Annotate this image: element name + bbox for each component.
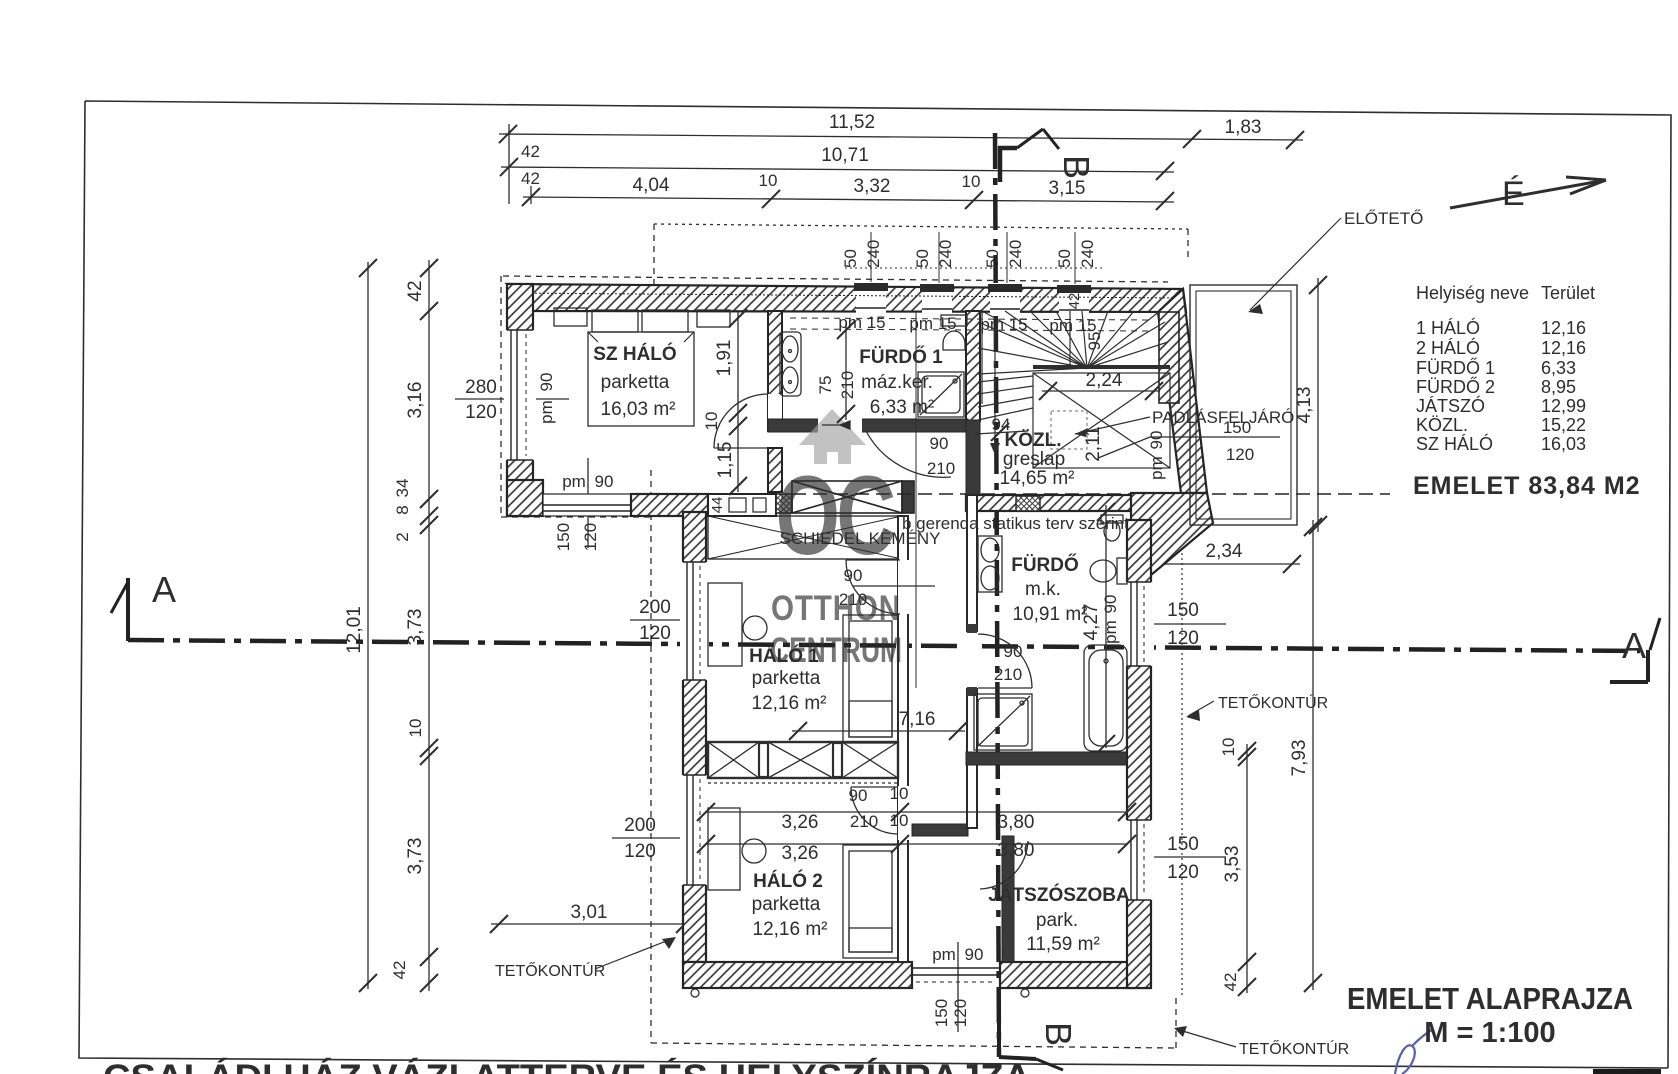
- svg-text:200: 200: [639, 597, 671, 618]
- svg-text:8,95: 8,95: [1541, 377, 1576, 397]
- svg-text:12,16 m²: 12,16 m²: [752, 693, 827, 714]
- svg-text:90: 90: [930, 434, 949, 453]
- svg-text:3,26: 3,26: [782, 812, 819, 833]
- svg-text:CSALÁDI HÁZ VÁZLATTERVE ÉS HEL: CSALÁDI HÁZ VÁZLATTERVE ÉS HELYSZÍNRAJZA: [103, 1057, 1031, 1074]
- svg-text:44: 44: [709, 497, 726, 514]
- svg-text:FÜRDŐ 1: FÜRDŐ 1: [1416, 357, 1495, 378]
- svg-text:EMELET ALAPRAJZA: EMELET ALAPRAJZA: [1347, 981, 1633, 1016]
- svg-text:50: 50: [841, 249, 860, 268]
- svg-text:42: 42: [521, 169, 540, 188]
- svg-text:12,99: 12,99: [1541, 396, 1586, 416]
- svg-text:10: 10: [1219, 738, 1238, 757]
- svg-text:16,03 m²: 16,03 m²: [601, 399, 676, 420]
- svg-text:Helyiség neve: Helyiség neve: [1416, 283, 1529, 303]
- svg-text:90: 90: [844, 566, 863, 585]
- svg-text:10,91 m²: 10,91 m²: [1013, 604, 1088, 625]
- svg-text:7,93: 7,93: [1289, 740, 1310, 777]
- svg-text:TETŐKONTÚR: TETŐKONTÚR: [1239, 1039, 1349, 1058]
- svg-text:3,32: 3,32: [854, 176, 891, 197]
- svg-text:90: 90: [595, 472, 614, 491]
- svg-text:FÜRDŐ 2: FÜRDŐ 2: [1416, 376, 1495, 397]
- svg-text:B: B: [1038, 1022, 1079, 1046]
- svg-text:90: 90: [1101, 595, 1120, 614]
- svg-text:150: 150: [554, 523, 573, 551]
- svg-text:É: É: [1502, 175, 1525, 213]
- svg-text:3,73: 3,73: [405, 838, 426, 875]
- svg-text:210: 210: [838, 371, 857, 399]
- svg-text:16,03: 16,03: [1541, 434, 1586, 454]
- svg-text:75: 75: [816, 376, 835, 395]
- svg-text:3,15: 3,15: [1049, 178, 1086, 199]
- svg-text:M = 1:100: M = 1:100: [1424, 1017, 1555, 1049]
- svg-text:pm: pm: [537, 400, 556, 424]
- svg-text:50: 50: [1055, 249, 1074, 268]
- svg-text:ELŐTETŐ: ELŐTETŐ: [1344, 209, 1423, 228]
- svg-text:210: 210: [850, 812, 878, 831]
- svg-text:150: 150: [1167, 834, 1199, 855]
- svg-text:240: 240: [1078, 240, 1097, 268]
- svg-text:KÖZL.: KÖZL.: [1005, 430, 1062, 451]
- svg-text:3,80: 3,80: [998, 812, 1035, 833]
- svg-text:3,16: 3,16: [405, 382, 426, 419]
- svg-text:B: B: [1056, 155, 1097, 179]
- svg-text:4,27: 4,27: [1081, 604, 1102, 641]
- svg-text:parketta: parketta: [752, 894, 821, 915]
- svg-text:14,65 m²: 14,65 m²: [1000, 468, 1075, 489]
- svg-text:42: 42: [390, 961, 409, 980]
- svg-text:42: 42: [1066, 293, 1083, 310]
- svg-text:JÁTSZÓSZOBA: JÁTSZÓSZOBA: [988, 884, 1130, 906]
- svg-text:90: 90: [1004, 642, 1023, 661]
- svg-text:Terület: Terület: [1541, 283, 1595, 303]
- svg-text:280: 280: [465, 377, 497, 398]
- svg-text:150: 150: [1167, 600, 1199, 621]
- svg-text:6,33 m²: 6,33 m²: [870, 397, 934, 418]
- svg-text:EMELET 83,84 M2: EMELET 83,84 M2: [1413, 472, 1641, 500]
- svg-text:210: 210: [839, 590, 867, 609]
- svg-text:120: 120: [581, 523, 600, 551]
- svg-text:240: 240: [1006, 240, 1025, 268]
- svg-text:8: 8: [393, 505, 412, 514]
- svg-text:TETŐKONTÚR: TETŐKONTÚR: [1218, 693, 1328, 712]
- svg-text:1,91: 1,91: [714, 340, 735, 377]
- svg-text:12,16 m²: 12,16 m²: [753, 919, 828, 940]
- svg-text:50: 50: [983, 249, 1002, 268]
- svg-text:m.k.: m.k.: [1025, 579, 1061, 600]
- svg-text:pm: pm: [1101, 620, 1120, 644]
- svg-text:FÜRDŐ 1: FÜRDŐ 1: [859, 346, 943, 368]
- svg-text:7,16: 7,16: [899, 709, 936, 730]
- svg-text:94: 94: [992, 415, 1011, 434]
- svg-text:KÖZL.: KÖZL.: [1416, 415, 1468, 435]
- svg-text:42: 42: [521, 142, 540, 161]
- svg-text:90: 90: [849, 786, 868, 805]
- svg-text:150: 150: [1223, 418, 1251, 437]
- svg-text:FÜRDŐ: FÜRDŐ: [1011, 554, 1079, 576]
- svg-text:210: 210: [994, 665, 1022, 684]
- svg-text:12,16: 12,16: [1541, 338, 1586, 358]
- svg-text:b gerenda statikus terv szerin: b gerenda statikus terv szerint: [902, 514, 1129, 533]
- svg-text:pm: pm: [932, 945, 956, 964]
- svg-text:42: 42: [405, 280, 426, 301]
- svg-text:3,01: 3,01: [571, 902, 608, 923]
- svg-text:SZ HÁLÓ: SZ HÁLÓ: [593, 343, 676, 365]
- svg-text:A: A: [152, 569, 176, 610]
- svg-text:10: 10: [702, 412, 721, 431]
- svg-text:A: A: [1622, 625, 1646, 666]
- svg-text:50: 50: [913, 249, 932, 268]
- svg-text:11,52: 11,52: [829, 112, 875, 133]
- svg-text:90: 90: [1147, 431, 1166, 450]
- svg-text:park.: park.: [1036, 910, 1078, 931]
- svg-text:150: 150: [932, 999, 951, 1027]
- svg-text:1 HÁLÓ: 1 HÁLÓ: [1416, 317, 1480, 338]
- svg-text:90: 90: [537, 373, 556, 392]
- svg-text:3,26: 3,26: [782, 843, 819, 864]
- svg-text:6,33: 6,33: [1541, 358, 1576, 378]
- svg-text:3,80: 3,80: [998, 840, 1035, 861]
- svg-text:1,83: 1,83: [1225, 117, 1262, 138]
- svg-text:210: 210: [927, 459, 955, 478]
- svg-text:pm: pm: [562, 472, 586, 491]
- svg-text:120: 120: [1226, 445, 1254, 464]
- svg-text:10: 10: [890, 784, 909, 803]
- svg-text:OC: OC: [776, 453, 895, 578]
- svg-text:JÁTSZÓ: JÁTSZÓ: [1416, 395, 1485, 416]
- svg-text:pm 15: pm 15: [1049, 316, 1096, 335]
- svg-text:12,01: 12,01: [344, 606, 365, 654]
- svg-text:TETŐKONTÚR: TETŐKONTÚR: [495, 961, 605, 980]
- svg-text:1,15: 1,15: [715, 442, 736, 479]
- svg-text:90: 90: [965, 945, 984, 964]
- svg-text:120: 120: [951, 999, 970, 1027]
- svg-text:parketta: parketta: [601, 372, 670, 393]
- svg-text:42: 42: [1221, 973, 1240, 992]
- svg-text:pm 15: pm 15: [980, 315, 1027, 334]
- svg-text:10: 10: [759, 171, 778, 190]
- svg-text:240: 240: [864, 240, 883, 268]
- svg-text:10: 10: [962, 172, 981, 191]
- svg-text:2: 2: [393, 532, 412, 541]
- svg-text:SZ HÁLÓ: SZ HÁLÓ: [1416, 433, 1493, 454]
- svg-text:34: 34: [393, 479, 412, 498]
- svg-text:HÁLÓ 2: HÁLÓ 2: [753, 870, 823, 892]
- svg-text:11,59 m²: 11,59 m²: [1026, 934, 1100, 955]
- svg-text:3,53: 3,53: [1222, 846, 1243, 883]
- svg-text:máz.ker.: máz.ker.: [861, 372, 933, 393]
- svg-text:10,71: 10,71: [821, 145, 869, 166]
- svg-text:HÁLÓ 1: HÁLÓ 1: [749, 645, 819, 667]
- svg-text:greslap: greslap: [1003, 449, 1065, 470]
- svg-text:2,34: 2,34: [1206, 541, 1243, 562]
- svg-text:120: 120: [639, 623, 671, 644]
- svg-text:2 HÁLÓ: 2 HÁLÓ: [1416, 337, 1480, 358]
- svg-text:120: 120: [1167, 862, 1199, 883]
- svg-text:10: 10: [406, 719, 425, 738]
- svg-text:pm: pm: [1147, 456, 1166, 480]
- svg-text:4,04: 4,04: [633, 175, 670, 196]
- svg-text:parketta: parketta: [752, 668, 821, 689]
- svg-text:10: 10: [890, 811, 909, 830]
- svg-text:120: 120: [465, 402, 497, 423]
- svg-text:2,24: 2,24: [1086, 370, 1123, 391]
- svg-text:OTTHON: OTTHON: [771, 589, 901, 628]
- svg-text:12,16: 12,16: [1541, 318, 1586, 338]
- svg-text:2,11: 2,11: [1083, 426, 1104, 462]
- svg-text:15,22: 15,22: [1541, 415, 1586, 435]
